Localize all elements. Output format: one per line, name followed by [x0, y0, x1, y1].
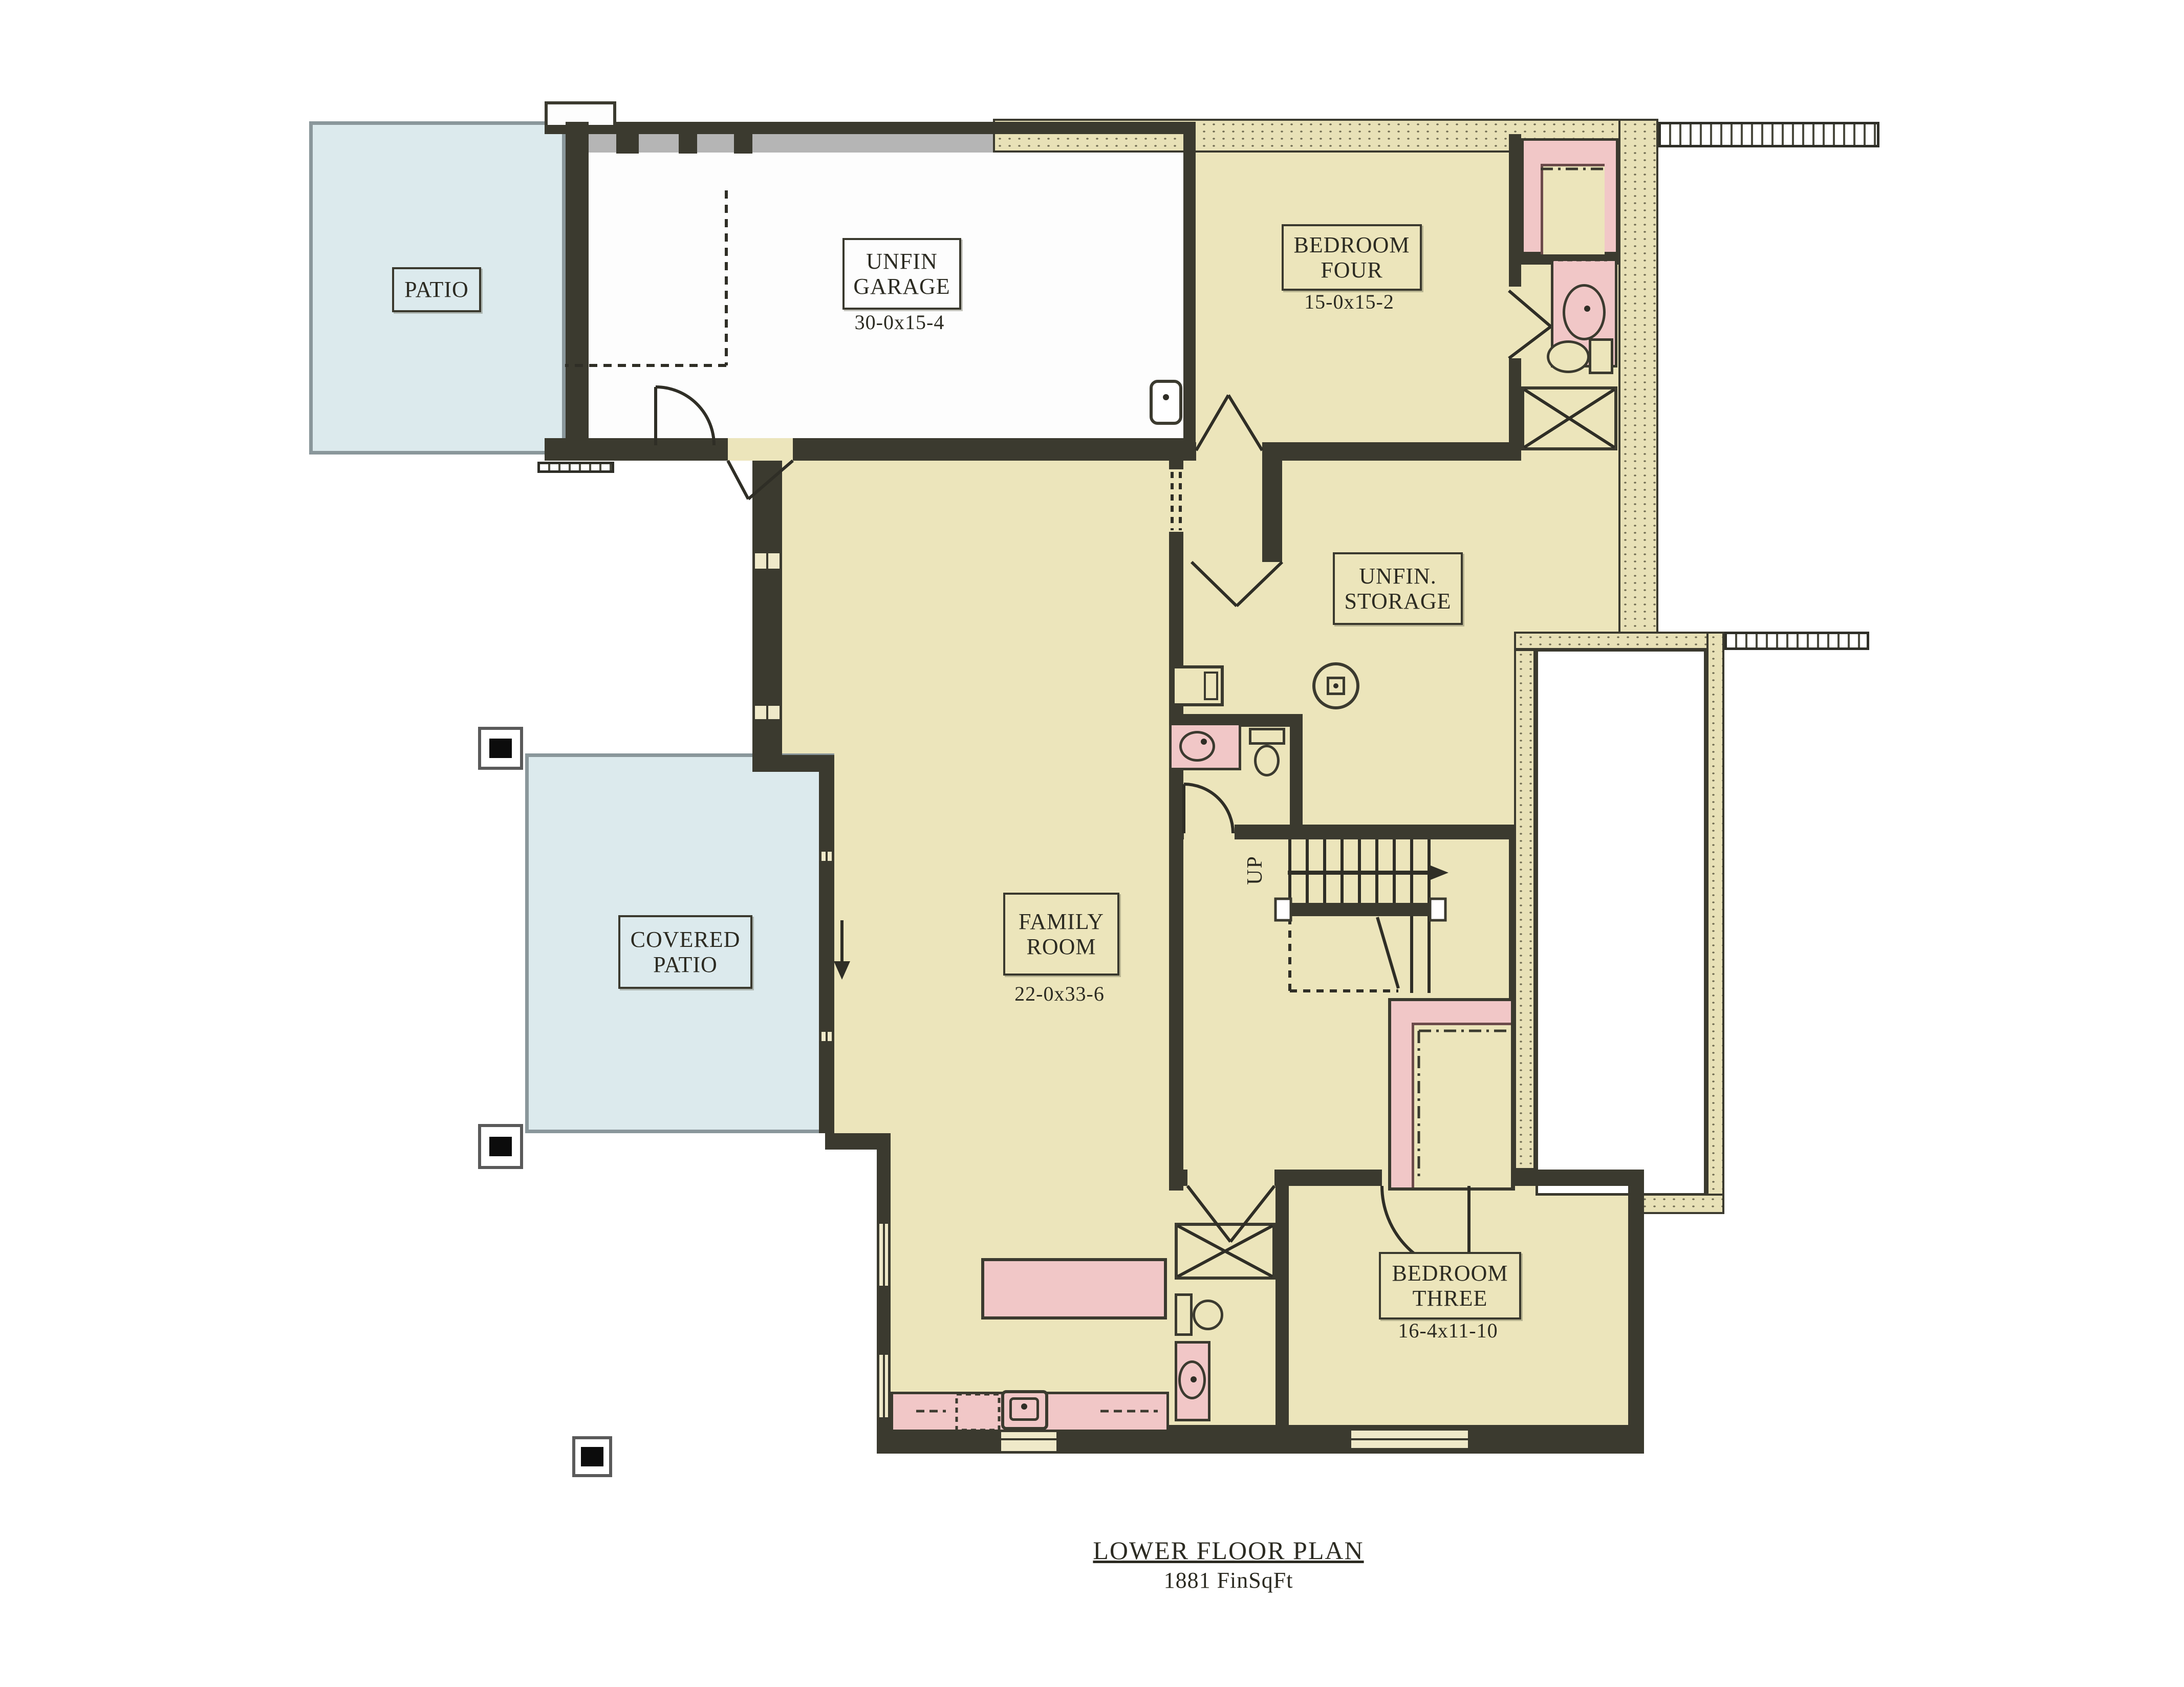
- bed4-shower: [1521, 386, 1617, 450]
- window-bottom-bed3: [1351, 1428, 1468, 1451]
- window-family-west-2: [752, 706, 782, 719]
- hallbath-sink: [1179, 731, 1215, 762]
- deck-line-top-right: [1658, 122, 1879, 147]
- window-patio-east-2: [819, 1032, 834, 1041]
- window-patio-east-1: [819, 852, 834, 861]
- door-opening-bath3: [1187, 1170, 1274, 1186]
- window-family-lower-2: [877, 1355, 891, 1417]
- door-opening-bed4-bath: [1509, 287, 1521, 358]
- label-bed3-line1: BEDROOM: [1392, 1261, 1508, 1286]
- bed4-toilet-tank: [1589, 338, 1613, 374]
- label-patio: PATIO: [392, 267, 481, 312]
- bath3-toilet-bowl: [1193, 1300, 1223, 1330]
- hallbath-toilet-bowl: [1254, 745, 1280, 776]
- window-family-lower-1: [877, 1224, 891, 1286]
- label-family-line2: ROOM: [1026, 934, 1096, 959]
- wall-garage-bottom-right: [793, 438, 1183, 461]
- wall-hallbath-east: [1290, 714, 1303, 839]
- foundation-wall-east-upper: [1618, 119, 1658, 649]
- lower-floor-plan: PATIO UNFIN GARAGE 30-0x15-4 BEDROOM FOU…: [0, 0, 2184, 1687]
- wall-jog-patio-top: [752, 755, 834, 772]
- opening-family-storage: [1169, 469, 1183, 532]
- bed4-closet-interior: [1541, 164, 1605, 254]
- yard-post: [572, 1436, 612, 1477]
- post-garage-top-1: [616, 133, 639, 154]
- bath3-sink: [1178, 1360, 1206, 1399]
- post-garage-top-3: [734, 133, 752, 154]
- foundation-wall-well-top: [1514, 632, 1724, 650]
- bath3-shower: [1175, 1223, 1275, 1280]
- wall-bed3-east: [1628, 1186, 1644, 1443]
- label-covered-patio-line2: PATIO: [653, 952, 718, 977]
- label-patio-text: PATIO: [404, 277, 469, 302]
- hallbath-toilet-tank: [1249, 728, 1285, 745]
- water-heater-core: [1327, 677, 1345, 695]
- label-garage: UNFIN GARAGE: [842, 238, 961, 310]
- dims-bedroom-three: 16-4x11-10: [1379, 1318, 1517, 1343]
- wall-garage-bed4: [1183, 122, 1196, 461]
- dims-family-room: 22-0x33-6: [993, 982, 1126, 1006]
- wet-bar-sink-basin: [1009, 1397, 1039, 1421]
- door-opening-hallbath: [1184, 825, 1235, 839]
- label-covered-patio-line1: COVERED: [631, 927, 741, 952]
- bed4-toilet-bowl: [1547, 340, 1590, 373]
- furnace-door: [1204, 672, 1218, 700]
- door-opening-bed4: [1196, 442, 1262, 461]
- label-storage-line1: UNFIN.: [1359, 564, 1436, 589]
- foundation-wall-well-right: [1706, 632, 1724, 1213]
- bed4-bath-sink: [1563, 284, 1606, 340]
- label-storage-line2: STORAGE: [1344, 589, 1451, 614]
- window-well-area: [1536, 649, 1706, 1196]
- door-opening-family-entry: [728, 438, 793, 461]
- wall-garage-bottom-left: [545, 438, 728, 461]
- bed3-closet-interior: [1412, 1023, 1511, 1187]
- dims-garage: 30-0x15-4: [839, 310, 960, 334]
- wall-garage-top-band: [589, 134, 993, 153]
- window-family-west-1: [752, 553, 782, 569]
- floor-family-room-upper: [752, 461, 1183, 755]
- wall-bed3-bath: [1275, 1186, 1289, 1425]
- label-family-line1: FAMILY: [1019, 909, 1104, 934]
- label-family-room: FAMILY ROOM: [1003, 893, 1119, 976]
- wall-vestibule-stub: [1262, 454, 1282, 562]
- wall-garage-top: [545, 122, 1183, 134]
- wall-jog-patio-bottom: [825, 1133, 891, 1150]
- bath3-toilet-tank: [1175, 1293, 1193, 1336]
- label-garage-line2: GARAGE: [853, 274, 950, 299]
- patio-post-1: [478, 727, 523, 770]
- patio-post-2: [478, 1124, 523, 1169]
- dims-bedroom-four: 15-0x15-2: [1280, 290, 1419, 314]
- foundation-wall-east-mid: [1514, 649, 1536, 1170]
- label-bed4-line2: FOUR: [1321, 257, 1382, 283]
- wall-garage-west: [566, 122, 589, 461]
- label-bed3-line2: THREE: [1413, 1286, 1488, 1311]
- label-unfin-storage: UNFIN. STORAGE: [1333, 552, 1463, 625]
- post-garage-top-2: [679, 133, 697, 154]
- plan-subtitle: 1881 FinSqFt: [1011, 1567, 1446, 1593]
- garage-sink: [1150, 380, 1182, 425]
- deck-line-right: [1724, 632, 1869, 650]
- label-bedroom-four: BEDROOM FOUR: [1282, 224, 1422, 291]
- label-bed4-line1: BEDROOM: [1293, 232, 1410, 257]
- stair-up-label: UP: [1243, 850, 1284, 891]
- plan-title: LOWER FLOOR PLAN: [1011, 1535, 1446, 1565]
- wall-covered-patio-east: [819, 772, 834, 1133]
- deck-line-garage-sw: [537, 462, 614, 473]
- family-island: [981, 1258, 1167, 1320]
- label-covered-patio: COVERED PATIO: [618, 915, 752, 989]
- label-garage-line1: UNFIN: [866, 249, 937, 274]
- label-bedroom-three: BEDROOM THREE: [1379, 1252, 1521, 1320]
